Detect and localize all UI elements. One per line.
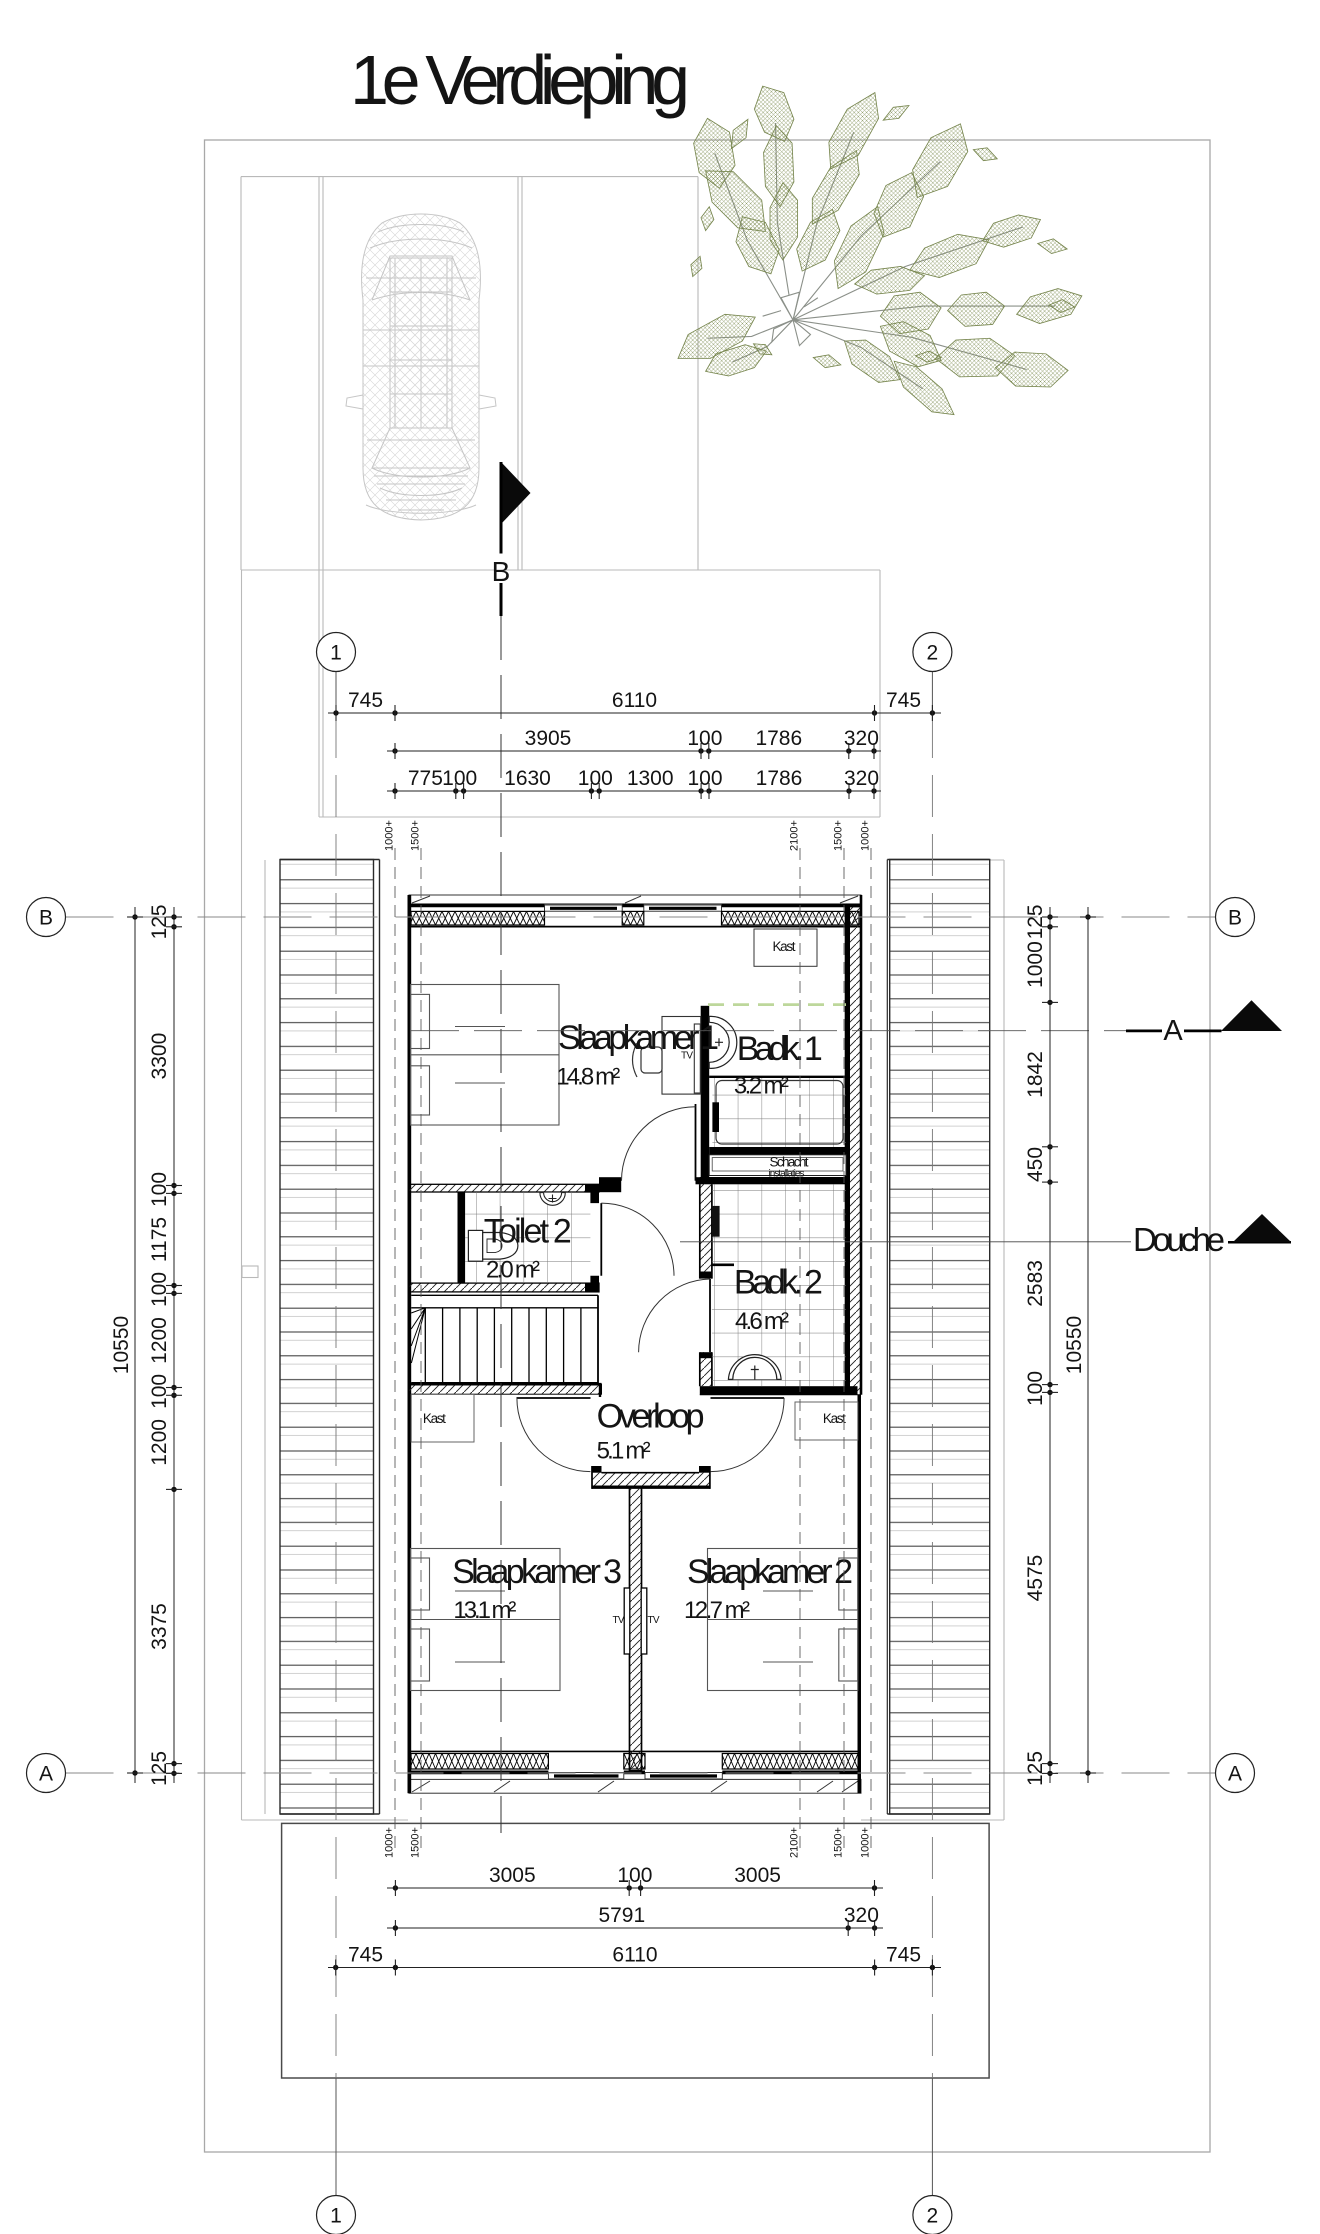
svg-text:4575: 4575 (1024, 1555, 1047, 1602)
svg-text:100: 100 (578, 767, 613, 790)
svg-text:1786: 1786 (755, 727, 802, 750)
svg-text:1842: 1842 (1024, 1051, 1047, 1098)
svg-text:3005: 3005 (489, 1864, 536, 1887)
svg-text:125: 125 (148, 1751, 171, 1786)
svg-text:2: 2 (927, 642, 939, 665)
svg-text:Badk. 1: Badk. 1 (737, 1030, 823, 1068)
svg-text:B: B (39, 907, 53, 930)
svg-text:Slaapkamer 1: Slaapkamer 1 (558, 1019, 719, 1057)
svg-text:1300: 1300 (627, 767, 674, 790)
svg-text:2.0 m²: 2.0 m² (486, 1257, 540, 1284)
svg-text:745: 745 (886, 689, 921, 712)
svg-text:6110: 6110 (612, 1944, 657, 1967)
svg-text:100: 100 (687, 767, 722, 790)
svg-text:A: A (39, 1763, 53, 1786)
svg-text:745: 745 (348, 1944, 383, 1967)
svg-text:450: 450 (1024, 1147, 1047, 1182)
svg-text:125: 125 (1024, 1751, 1047, 1786)
svg-text:100: 100 (148, 1272, 171, 1307)
svg-text:TV: TV (613, 1615, 625, 1626)
svg-text:TV: TV (648, 1615, 660, 1626)
svg-text:100: 100 (687, 727, 722, 750)
svg-text:Slaapkamer 3: Slaapkamer 3 (452, 1553, 622, 1591)
svg-text:3375: 3375 (148, 1603, 171, 1650)
svg-text:6110: 6110 (612, 689, 657, 712)
svg-text:installaties: installaties (769, 1169, 805, 1180)
svg-text:125: 125 (1024, 904, 1047, 939)
svg-text:2: 2 (927, 2205, 939, 2228)
svg-text:5791: 5791 (598, 1904, 645, 1927)
svg-text:1200: 1200 (148, 1419, 171, 1466)
svg-text:Schacht: Schacht (770, 1155, 809, 1170)
svg-text:1200: 1200 (148, 1317, 171, 1364)
svg-text:Kast: Kast (773, 939, 796, 954)
svg-text:1500+: 1500+ (833, 1827, 845, 1858)
svg-text:1000+: 1000+ (860, 1827, 872, 1858)
svg-text:1500+: 1500+ (833, 820, 845, 851)
svg-text:125: 125 (148, 904, 171, 939)
svg-text:100: 100 (1024, 1371, 1047, 1406)
svg-text:10550: 10550 (110, 1316, 133, 1374)
svg-text:1000+: 1000+ (860, 820, 872, 851)
svg-text:3300: 3300 (148, 1033, 171, 1080)
svg-text:Toilet 2: Toilet 2 (484, 1213, 572, 1251)
svg-text:775: 775 (408, 767, 443, 790)
svg-text:10550: 10550 (1063, 1316, 1086, 1374)
svg-text:745: 745 (886, 1944, 921, 1967)
svg-text:745: 745 (348, 689, 383, 712)
svg-text:100: 100 (148, 1172, 171, 1207)
svg-text:4.6 m²: 4.6 m² (735, 1308, 789, 1335)
svg-text:1500+: 1500+ (410, 820, 422, 851)
svg-text:1630: 1630 (504, 767, 551, 790)
svg-text:Kast: Kast (423, 1411, 446, 1426)
svg-text:1175: 1175 (148, 1217, 171, 1262)
svg-text:1000+: 1000+ (384, 1827, 396, 1858)
svg-text:Douche: Douche (1133, 1221, 1225, 1258)
svg-text:1000: 1000 (1024, 941, 1047, 988)
svg-text:1: 1 (330, 2205, 342, 2228)
svg-text:Badk. 2: Badk. 2 (734, 1264, 823, 1302)
svg-text:320: 320 (844, 1904, 879, 1927)
svg-text:Kast: Kast (823, 1411, 846, 1426)
svg-text:1500+: 1500+ (410, 1827, 422, 1858)
svg-text:2100+: 2100+ (789, 1827, 801, 1858)
svg-text:A: A (1228, 1763, 1242, 1786)
svg-text:100: 100 (617, 1864, 652, 1887)
svg-text:14.8 m²: 14.8 m² (556, 1064, 620, 1091)
svg-text:A: A (1163, 1015, 1183, 1047)
svg-text:3.2 m²: 3.2 m² (734, 1073, 789, 1100)
svg-text:5.1 m²: 5.1 m² (597, 1438, 651, 1465)
svg-text:B: B (492, 556, 511, 587)
svg-text:1: 1 (330, 642, 342, 665)
svg-text:1786: 1786 (756, 767, 803, 790)
svg-text:Slaapkamer 2: Slaapkamer 2 (687, 1553, 853, 1591)
svg-text:1000+: 1000+ (384, 820, 396, 851)
svg-text:13.1 m²: 13.1 m² (453, 1597, 516, 1624)
svg-text:3005: 3005 (734, 1864, 781, 1887)
svg-text:1e Verdieping: 1e Verdieping (350, 41, 690, 119)
svg-text:320: 320 (844, 767, 879, 790)
svg-text:2100+: 2100+ (789, 820, 801, 851)
svg-text:100: 100 (148, 1374, 171, 1409)
svg-text:3905: 3905 (525, 727, 572, 750)
svg-text:Overloop: Overloop (597, 1398, 705, 1436)
svg-text:B: B (1228, 907, 1242, 930)
svg-text:320: 320 (844, 727, 879, 750)
svg-text:12.7 m²: 12.7 m² (684, 1597, 750, 1624)
svg-text:100: 100 (442, 767, 477, 790)
svg-text:2583: 2583 (1024, 1260, 1047, 1307)
